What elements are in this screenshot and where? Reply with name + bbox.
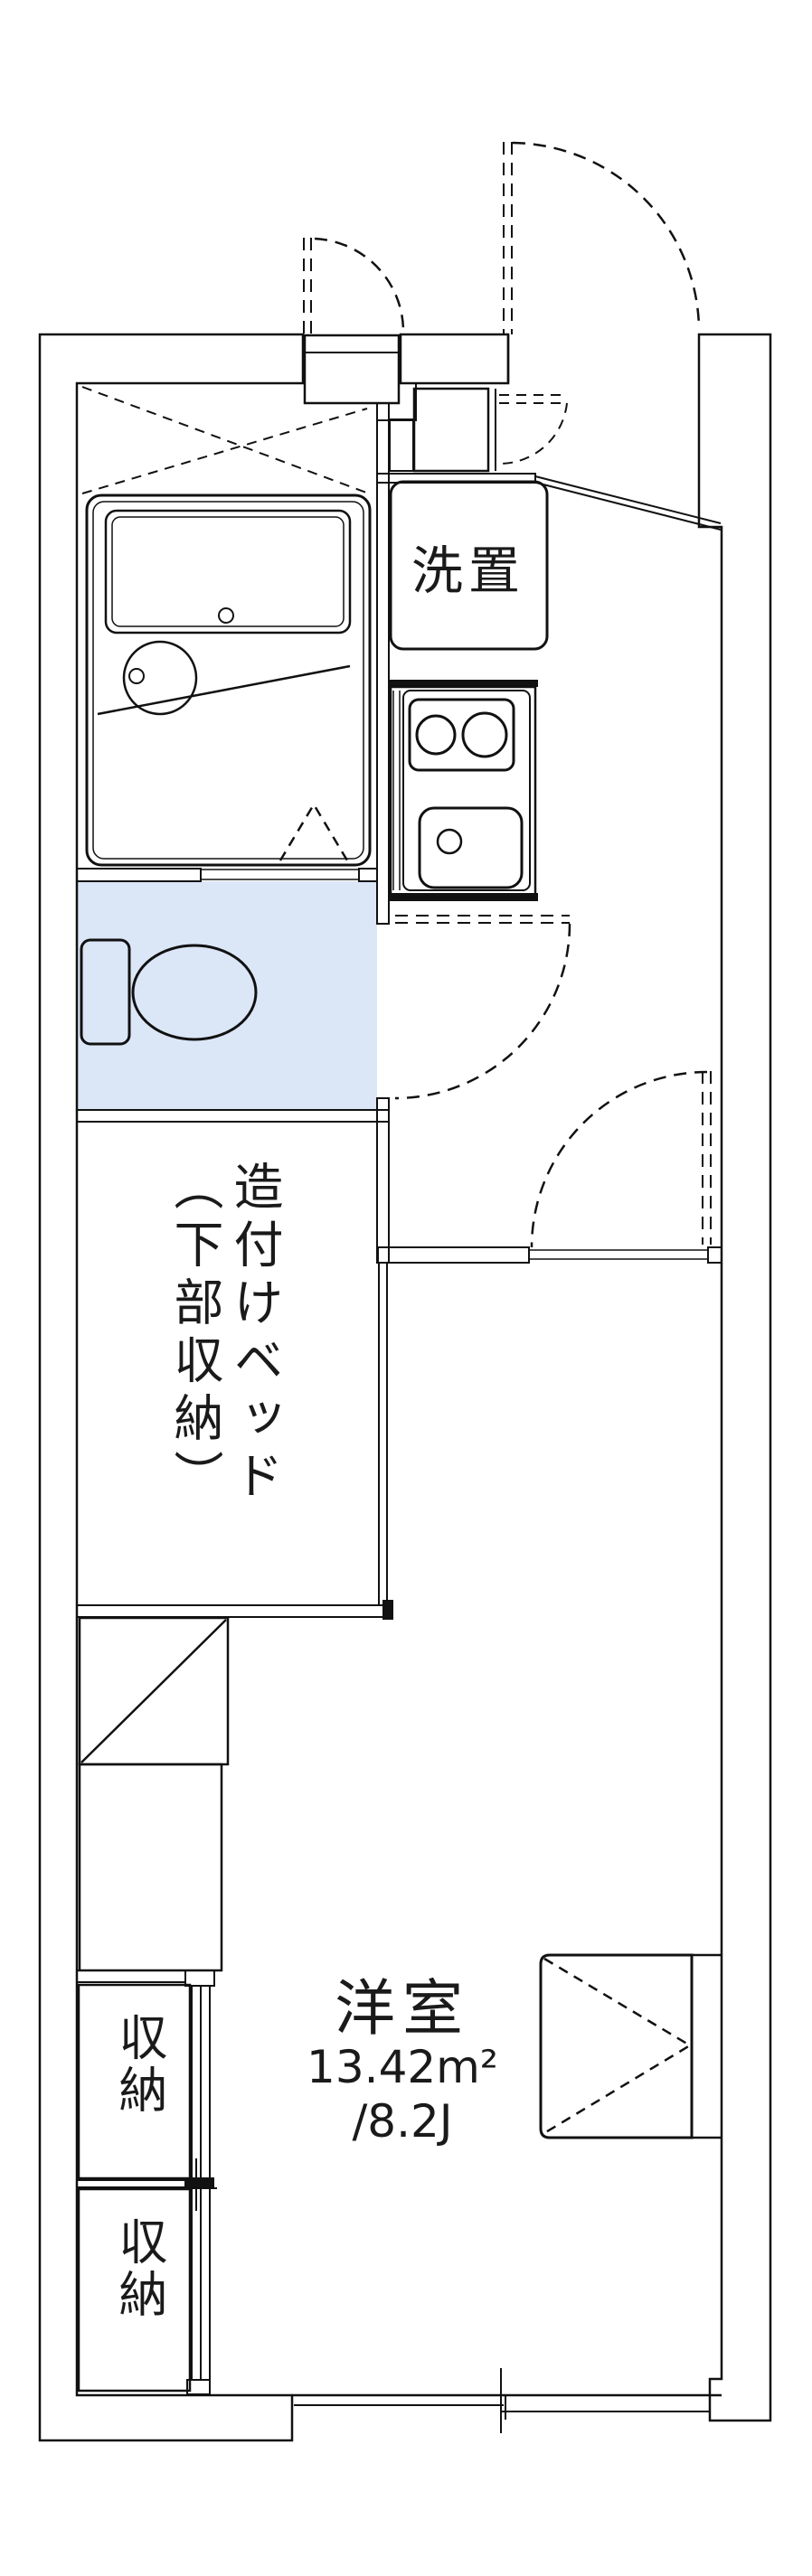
- kitchen: [391, 687, 535, 895]
- hall-door-leaf: [499, 395, 567, 403]
- room-floors: [77, 881, 377, 1110]
- wall-top-mid: [401, 334, 508, 383]
- room-area-label: 13.42m²: [289, 2041, 515, 2093]
- bay-unit-box: [541, 1955, 692, 2138]
- room-opening: [529, 1250, 708, 1259]
- bathroom: [82, 387, 370, 879]
- wall-divider-upper: [377, 383, 389, 924]
- toilet-door-arc: [395, 924, 570, 1098]
- sink-drain: [438, 830, 461, 853]
- shelf-column: [80, 1618, 228, 1970]
- shelf-diagonal-line: [81, 1620, 226, 1763]
- bed-area: [379, 1263, 387, 1605]
- room-name-label: 洋室: [298, 1960, 506, 2047]
- floorplan-drawing: [0, 0, 812, 2576]
- shelf-plain-box: [80, 1764, 222, 1970]
- storage-upper-label: 収納: [103, 2012, 175, 2171]
- toilet-door-leaf: [395, 916, 570, 923]
- entrance-door-leaf: [504, 142, 512, 334]
- room-tatami-label: /8.2J: [289, 2095, 515, 2148]
- wall-bath-toilet-left: [77, 869, 201, 881]
- bath-counter-edge: [98, 666, 350, 714]
- bath-unit: [87, 495, 370, 865]
- wall-divider-lower: [377, 1098, 389, 1263]
- entrance-area: [390, 389, 721, 530]
- top-openings: [303, 334, 508, 403]
- bay-unit: [541, 1955, 722, 2138]
- bath-washbasin-drain: [129, 669, 144, 683]
- entrance-step-edge: [535, 476, 721, 530]
- wall-toilet-bed: [77, 1110, 389, 1122]
- service-door-arc: [315, 239, 403, 333]
- floorplan-canvas: 洗置 造付けベッド（下部収納） 収納 収納 洋室 13.42m² /8.2J: [0, 0, 812, 2576]
- wall-bed-bottom: [77, 1605, 388, 1617]
- room-door-arc: [532, 1072, 707, 1247]
- storage-lower-label: 収納: [103, 2216, 175, 2375]
- hall-door-arc: [500, 403, 567, 464]
- entrance-side-strip: [390, 419, 413, 471]
- entrance-door-arc: [513, 143, 699, 327]
- bay-unit-open-direction: [544, 1959, 690, 2133]
- washer-place-label: 洗置: [387, 530, 550, 604]
- bathtub-inner-line: [112, 517, 344, 626]
- bathtub: [106, 511, 350, 633]
- bathroom-folding-door: [280, 804, 347, 860]
- toilet-room-floor: [77, 881, 377, 1110]
- bathtub-drain: [219, 608, 233, 623]
- wall-bath-toilet-right: [359, 869, 377, 881]
- wall-room-band-right: [708, 1247, 722, 1263]
- wall-storage-top: [77, 1970, 185, 1982]
- wall-storage-top-tab: [185, 1970, 214, 1986]
- stove-burner-right: [463, 713, 506, 757]
- service-door-leaf: [304, 238, 311, 334]
- service-door-niche: [305, 336, 399, 403]
- wall-room-band-left: [378, 1247, 529, 1263]
- kitchen-sink: [420, 808, 522, 888]
- built-in-bed-label: 造付けベッド（下部収納）: [165, 1161, 284, 1549]
- wall-right-outline: [699, 334, 770, 2421]
- bath-unit-inner-line: [93, 502, 364, 859]
- stove-burner-left: [417, 716, 455, 754]
- room-door-leaf: [703, 1071, 711, 1245]
- wall-storage-divider: [77, 2180, 185, 2187]
- balcony-window: [292, 2368, 722, 2433]
- entrance-step: [414, 389, 488, 471]
